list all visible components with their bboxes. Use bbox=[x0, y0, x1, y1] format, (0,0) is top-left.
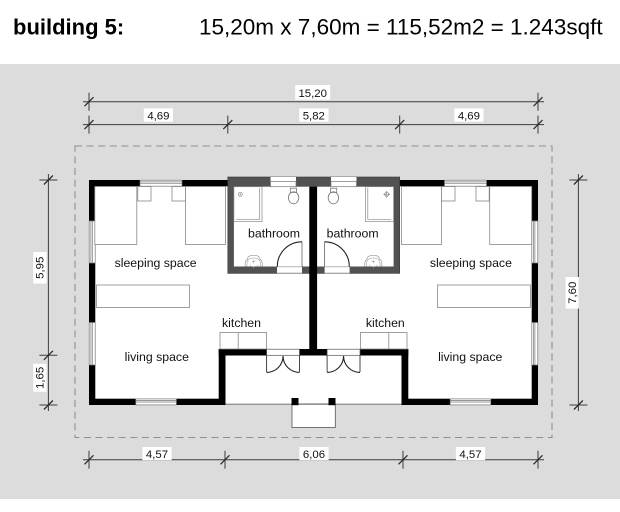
svg-text:bathroom: bathroom bbox=[327, 227, 379, 241]
svg-text:7,60: 7,60 bbox=[567, 282, 579, 304]
svg-text:kitchen: kitchen bbox=[222, 316, 261, 330]
svg-text:sleeping space: sleeping space bbox=[430, 256, 512, 270]
svg-text:living space: living space bbox=[438, 350, 502, 364]
svg-text:sleeping space: sleeping space bbox=[115, 256, 197, 270]
svg-text:building 5:: building 5: bbox=[13, 15, 124, 40]
svg-text:5,95: 5,95 bbox=[35, 257, 47, 279]
svg-text:6,06: 6,06 bbox=[303, 449, 325, 461]
svg-text:15,20: 15,20 bbox=[298, 88, 327, 100]
svg-text:living space: living space bbox=[125, 350, 189, 364]
svg-text:4,69: 4,69 bbox=[147, 111, 169, 123]
svg-text:4,69: 4,69 bbox=[458, 111, 480, 123]
svg-text:15,20m x 7,60m = 115,52m2 = 1.: 15,20m x 7,60m = 115,52m2 = 1.243sqft bbox=[199, 15, 603, 40]
svg-text:kitchen: kitchen bbox=[366, 316, 405, 330]
svg-text:4,57: 4,57 bbox=[459, 449, 481, 461]
svg-text:1,65: 1,65 bbox=[35, 367, 47, 389]
svg-text:bathroom: bathroom bbox=[248, 227, 300, 241]
svg-text:5,82: 5,82 bbox=[303, 111, 325, 123]
svg-text:4,57: 4,57 bbox=[146, 449, 168, 461]
